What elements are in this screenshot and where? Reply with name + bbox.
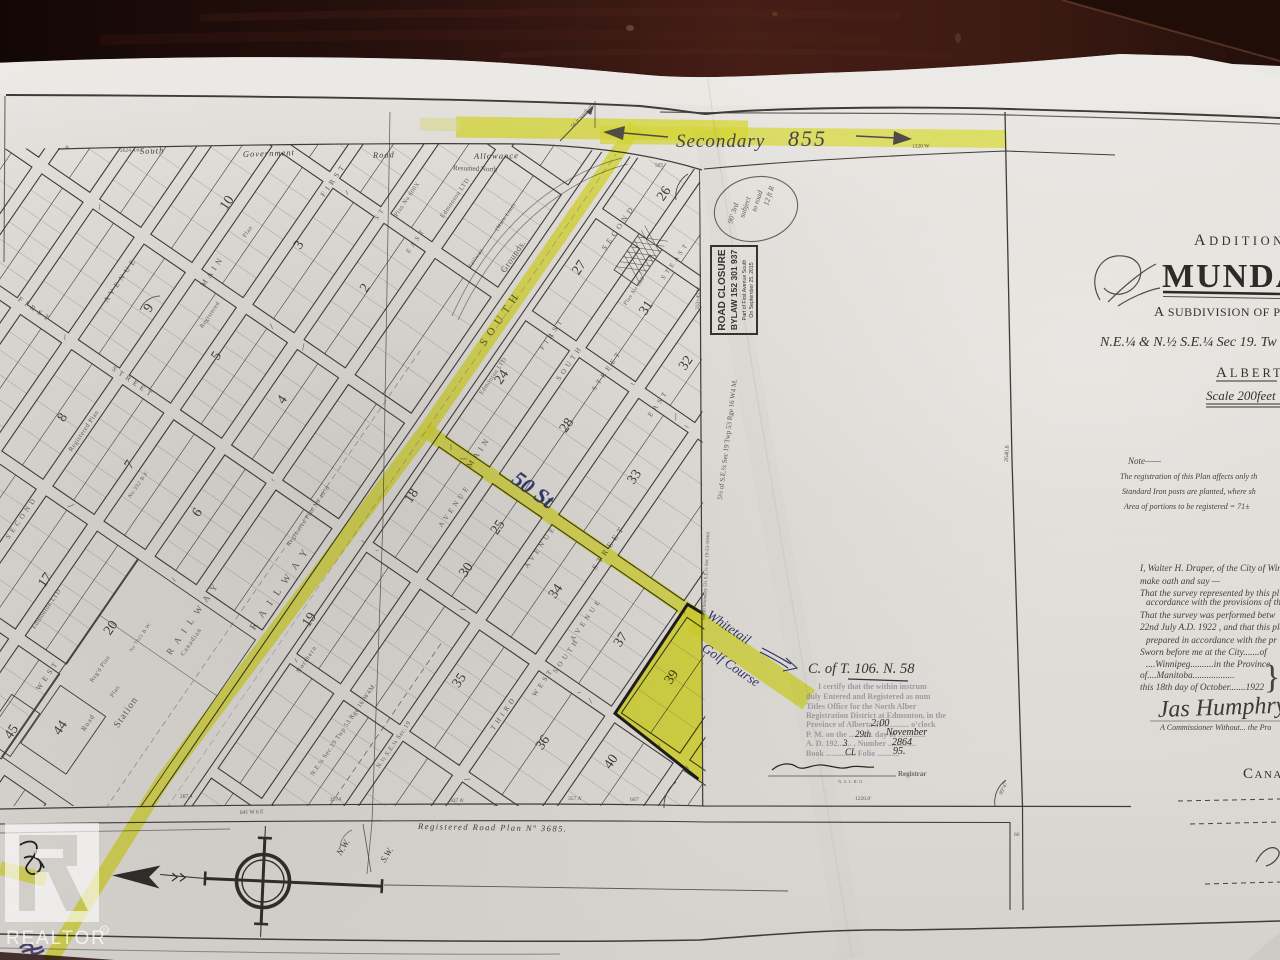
svg-text:this 18th day of October.....: this 18th day of October.......1922 bbox=[1140, 682, 1265, 693]
svg-text:accordance with the provisions: accordance with the provisions of the bbox=[1146, 597, 1280, 608]
svg-text:A Commissioner Without... the: A Commissioner Without... the Pro bbox=[1159, 723, 1271, 732]
svg-text:ALBERT: ALBERT bbox=[1216, 365, 1280, 381]
svg-text:make oath and say —: make oath and say — bbox=[1140, 577, 1221, 587]
svg-text:South: South bbox=[140, 145, 165, 156]
svg-text:of....Manitoba................: of....Manitoba.................. bbox=[1140, 670, 1235, 681]
svg-text:ADDITION: ADDITION bbox=[1194, 232, 1280, 249]
svg-text:MUNDAR: MUNDAR bbox=[1162, 258, 1280, 295]
svg-text:Government: Government bbox=[243, 147, 295, 159]
svg-text:&: & bbox=[65, 145, 70, 151]
svg-text:Area of portions to be registe: Area of portions to be registered = 71± bbox=[1123, 502, 1250, 511]
svg-text:C. of T. 106. N. 58: C. of T. 106. N. 58 bbox=[808, 661, 915, 677]
svg-text:Note——: Note—— bbox=[1127, 456, 1162, 466]
svg-text:Registrar: Registrar bbox=[898, 770, 926, 778]
svg-text:I certify that the within inst: I certify that the within instrum bbox=[818, 682, 927, 691]
svg-text:565: 565 bbox=[655, 163, 664, 169]
svg-text:Allowance: Allowance bbox=[473, 150, 519, 161]
svg-text:N. A. L. R. O.: N. A. L. R. O. bbox=[838, 779, 863, 784]
svg-text:66: 66 bbox=[1014, 832, 1020, 838]
svg-text:BYLAW 152 301 937: BYLAW 152 301 937 bbox=[729, 250, 739, 331]
svg-text:Jas Humphry: Jas Humphry bbox=[1157, 693, 1280, 723]
svg-text:Titles Office for the North Al: Titles Office for the North Alber bbox=[806, 702, 917, 711]
svg-text:That the survey was performed: That the survey was performed betw bbox=[1140, 610, 1276, 621]
svg-text:The registration of this Plan: The registration of this Plan affects on… bbox=[1120, 472, 1257, 481]
svg-text:667': 667' bbox=[630, 797, 639, 803]
svg-text:22nd July A.D. 1922 , and that: 22nd July A.D. 1922 , and that this pla bbox=[1140, 623, 1280, 633]
svg-text:95.: 95. bbox=[893, 746, 906, 757]
svg-text:CANAD: CANAD bbox=[1243, 766, 1280, 782]
svg-text:....Winnipeg..........in the P: ....Winnipeg..........in the Province bbox=[1146, 660, 1270, 670]
svg-text:REALTOR: REALTOR bbox=[6, 928, 107, 949]
svg-text:333+45 W: 333+45 W bbox=[695, 286, 702, 310]
svg-text:Resumed North: Resumed North bbox=[453, 164, 498, 174]
svg-text:prepared in accordance with th: prepared in accordance with the pr bbox=[1145, 636, 1277, 646]
svg-text:Part of First Avenue South: Part of First Avenue South bbox=[742, 260, 748, 321]
svg-text:}: } bbox=[1264, 659, 1280, 696]
svg-text:Sworn before me at the City...: Sworn before me at the City.......of bbox=[1140, 647, 1268, 658]
svg-text:Secondary: Secondary bbox=[676, 131, 765, 152]
svg-text:N.E.¼ & N.½ S.E.¼ Sec 19. Tw: N.E.¼ & N.½ S.E.¼ Sec 19. Tw bbox=[1099, 335, 1277, 350]
svg-text:641 W 6 E: 641 W 6 E bbox=[240, 809, 264, 816]
svg-text:duly Entered and Registered as: duly Entered and Registered as num bbox=[806, 692, 931, 701]
svg-text:855: 855 bbox=[788, 126, 827, 151]
svg-text:Scale 200feet: Scale 200feet bbox=[1206, 388, 1276, 403]
svg-text:337 A': 337 A' bbox=[450, 798, 464, 804]
svg-text:Standard Iron posts are plante: Standard Iron posts are planted, where s… bbox=[1122, 487, 1256, 496]
svg-text:I, Walter H. Draper, of the Ci: I, Walter H. Draper, of the City of Winn bbox=[1139, 563, 1280, 574]
svg-text:29th: 29th bbox=[855, 729, 872, 739]
svg-text:357 A': 357 A' bbox=[568, 796, 582, 802]
svg-text:Road: Road bbox=[372, 149, 395, 160]
svg-text:2074: 2074 bbox=[330, 797, 341, 803]
svg-text:ROAD CLOSURE: ROAD CLOSURE bbox=[717, 249, 728, 330]
svg-text:R: R bbox=[103, 929, 107, 935]
svg-text:CL: CL bbox=[845, 747, 856, 757]
svg-text:On September 25, 2015: On September 25, 2015 bbox=[749, 262, 755, 317]
svg-text:1220.0': 1220.0' bbox=[855, 796, 871, 802]
svg-text:A SUBDIVISION OF PA: A SUBDIVISION OF PA bbox=[1154, 305, 1280, 320]
svg-text:267.4: 267.4 bbox=[180, 794, 193, 800]
svg-text:2640.8: 2640.8 bbox=[1004, 445, 1011, 462]
